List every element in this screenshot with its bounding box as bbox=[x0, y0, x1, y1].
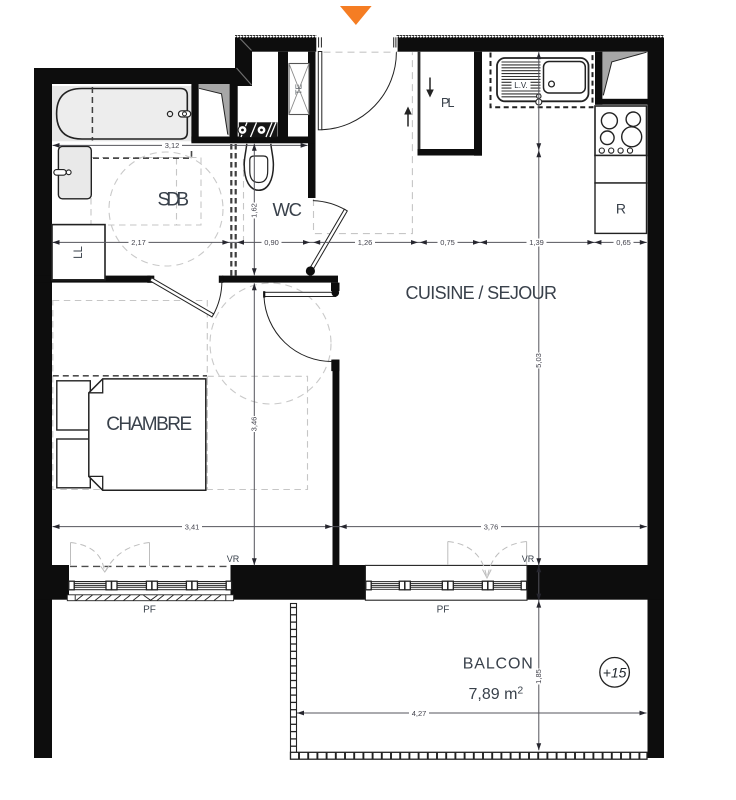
svg-text:1,26: 1,26 bbox=[358, 238, 373, 247]
svg-text:LL: LL bbox=[73, 246, 85, 259]
svg-text:3,46: 3,46 bbox=[249, 417, 258, 432]
svg-text:1,62: 1,62 bbox=[249, 203, 258, 218]
svg-text:+15: +15 bbox=[603, 665, 627, 681]
svg-text:CHAMBRE: CHAMBRE bbox=[106, 414, 192, 435]
svg-text:1,85: 1,85 bbox=[534, 669, 543, 684]
svg-text:TE: TE bbox=[293, 84, 303, 95]
svg-text:PF: PF bbox=[143, 605, 156, 616]
svg-text:CUISINE / SEJOUR: CUISINE / SEJOUR bbox=[406, 283, 558, 303]
svg-text:BALCON: BALCON bbox=[463, 656, 533, 673]
svg-text:0,90: 0,90 bbox=[264, 238, 279, 247]
svg-text:3,41: 3,41 bbox=[185, 522, 200, 531]
svg-text:3,76: 3,76 bbox=[484, 522, 499, 531]
svg-text:0,65: 0,65 bbox=[616, 238, 631, 247]
svg-text:PF: PF bbox=[437, 605, 450, 616]
svg-text:7,89 m2: 7,89 m2 bbox=[469, 685, 524, 704]
svg-text:1,39: 1,39 bbox=[529, 238, 544, 247]
svg-text:VR: VR bbox=[522, 554, 535, 564]
svg-text:2,17: 2,17 bbox=[131, 238, 146, 247]
svg-text:R: R bbox=[616, 200, 626, 216]
svg-text:WC: WC bbox=[273, 199, 303, 220]
svg-text:L.V.: L.V. bbox=[514, 81, 528, 90]
svg-text:3,12: 3,12 bbox=[165, 141, 180, 150]
svg-text:4,27: 4,27 bbox=[412, 709, 427, 718]
svg-text:SDB: SDB bbox=[158, 190, 190, 211]
svg-text:PL: PL bbox=[441, 96, 455, 110]
svg-text:0,75: 0,75 bbox=[440, 238, 455, 247]
svg-text:5,03: 5,03 bbox=[534, 353, 543, 368]
svg-text:VR: VR bbox=[227, 554, 240, 564]
